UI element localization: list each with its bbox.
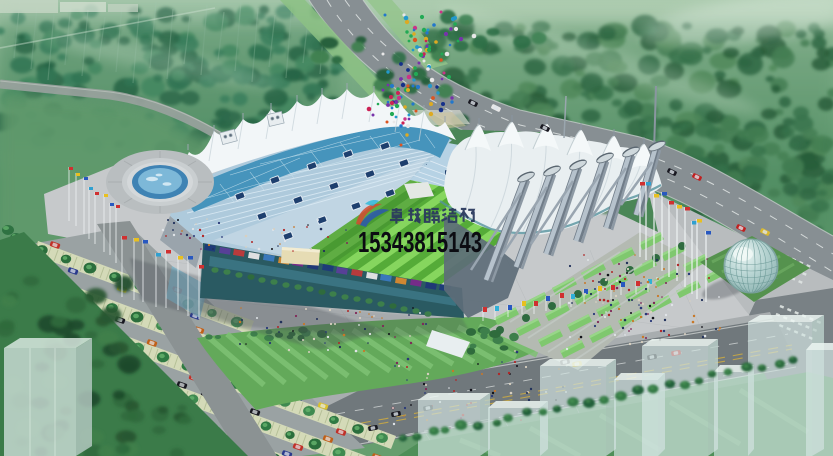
svg-text:15343815143: 15343815143 — [358, 227, 482, 259]
